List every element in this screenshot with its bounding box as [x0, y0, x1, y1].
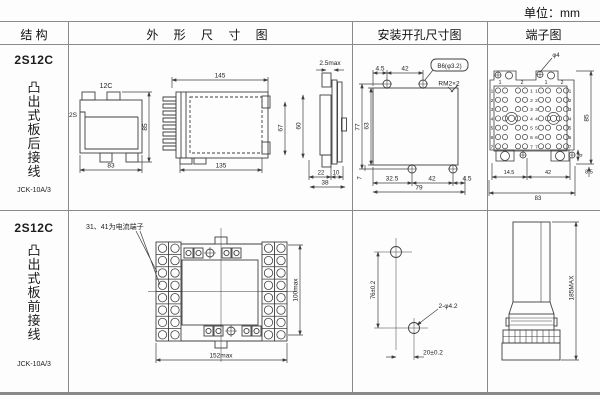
terminal-screw-circle — [264, 256, 272, 264]
row-label-right: 7 — [569, 144, 572, 150]
terminal-circle — [545, 107, 550, 112]
terminal-comb — [163, 97, 176, 150]
row-num-mid: 6 — [530, 135, 533, 141]
row-num-mid: 5 — [535, 126, 538, 132]
terminal-circle — [522, 88, 527, 93]
outline-drawing-row2 — [136, 228, 296, 362]
terminal-screw-circle — [158, 256, 166, 264]
terminal-screw-circle — [171, 281, 179, 289]
dim-rear-depth: 22 — [318, 171, 325, 177]
dim-bottom-total: 79 — [415, 185, 423, 192]
hole-note: B6(φ3.2) — [437, 63, 461, 70]
col-label: 1 — [499, 80, 502, 86]
terminal-circle — [538, 134, 543, 139]
mounting-dim-lines-row2 — [378, 252, 424, 357]
dim-width-max: 152max — [209, 353, 233, 360]
terminal-circle — [502, 134, 507, 139]
terminal-circle — [515, 97, 520, 102]
mounting-dim-lines-row1 — [359, 70, 465, 195]
datasheet-page: 单位：mm 结 构 外 形 尺 寸 图 安装开孔尺寸图 端子图 2S12C 凸 … — [0, 0, 600, 400]
terminal-hole-note: φ4 — [552, 53, 560, 59]
dim-bottom-seg2: 42 — [545, 170, 551, 176]
row-num-mid: 4 — [530, 116, 533, 122]
terminal-circle — [515, 107, 520, 112]
row-num-mid: 2 — [530, 98, 533, 104]
terminal-screw-circle — [277, 331, 285, 339]
terminal-circle — [522, 97, 527, 102]
terminal-circle — [538, 88, 543, 93]
dim-front-top: 12C — [100, 83, 113, 90]
drawings-svg: 12C 2S 83 85 145 135 67 60 2.5max 22 10 … — [0, 0, 600, 400]
row-label-left: 6 — [491, 135, 494, 141]
terminal-screw-circle — [277, 244, 285, 252]
terminal-screw-circle — [171, 293, 179, 301]
row-num-mid: 1 — [535, 89, 538, 95]
hole-size-note: 2-φ4.2 — [438, 303, 457, 310]
terminal-screw-circle — [264, 293, 272, 301]
dim-terminal-height: 85 — [584, 114, 591, 122]
terminal-screw-circle — [171, 331, 179, 339]
terminal-screw-circle — [158, 306, 166, 314]
dim-front-height: 85 — [142, 123, 149, 131]
terminal-circle — [495, 97, 500, 102]
terminal-circle — [538, 144, 543, 149]
terminal-circle — [515, 144, 520, 149]
row-num-mid: 3 — [535, 107, 538, 113]
terminal-screw-circle — [277, 318, 285, 326]
thread-note: RM2×2 — [438, 81, 460, 88]
mounting-bush-circle — [550, 115, 556, 121]
terminal-circle — [495, 144, 500, 149]
dim-bottom-seg1: 32.5 — [386, 176, 399, 183]
row-num-mid: 5 — [530, 126, 533, 132]
dim-height-max: 185MAX — [569, 275, 576, 301]
terminal-screw-circle — [277, 256, 285, 264]
terminal-circle — [556, 107, 561, 112]
row-label-left: 2 — [491, 98, 494, 104]
terminal-circle — [495, 125, 500, 130]
mounting-bush-circle — [548, 112, 560, 124]
dim-terminal-width: 83 — [535, 196, 542, 202]
terminal-screw-circle — [277, 293, 285, 301]
row-num-mid: 6 — [535, 135, 538, 141]
outline-drawing-row1 — [80, 73, 347, 167]
row-num-mid: 7 — [530, 144, 533, 150]
terminal-circle — [495, 116, 500, 121]
dim-front-side: 2S — [69, 112, 78, 119]
row-num-mid: 4 — [535, 116, 538, 122]
terminal-screw-circle — [264, 331, 272, 339]
outline-dim-text-row1: 12C 2S 83 85 145 135 67 60 2.5max 22 10 … — [69, 60, 341, 187]
terminal-screw-circle — [171, 306, 179, 314]
outline-dim-lines-row1 — [80, 70, 345, 187]
row-label-left: 1 — [491, 89, 494, 95]
terminal-circle — [502, 125, 507, 130]
terminal-circle — [495, 88, 500, 93]
terminal-screw-circle — [264, 318, 272, 326]
terminal-screw-circle — [171, 256, 179, 264]
row-label-right: 5 — [569, 126, 572, 132]
terminal-circle — [522, 144, 527, 149]
row-num-mid: 1 — [530, 89, 533, 95]
terminal-screw-circle — [264, 269, 272, 277]
terminal-circle — [515, 134, 520, 139]
dim-bottom-seg3: 4.5 — [462, 176, 471, 183]
dim-behind-panel: 38 — [321, 180, 329, 187]
terminal-screw-circle — [158, 269, 166, 277]
terminal-circle — [538, 107, 543, 112]
terminal-drawing-row2 — [502, 222, 560, 360]
terminal-circle — [502, 88, 507, 93]
terminal-grid: 1111222233334444555566667777 — [491, 88, 572, 150]
row-label-left: 7 — [491, 144, 494, 150]
dim-side-rear-h: 60 — [296, 122, 303, 130]
dim-front-width: 83 — [107, 163, 115, 170]
terminal-circle — [515, 125, 520, 130]
dim-height-max: 100max — [293, 278, 300, 302]
terminal-screw-circle — [277, 269, 285, 277]
dim-bottom-seg2: 42 — [428, 176, 436, 183]
dim-hole-spacing-h: 20±0.2 — [423, 350, 443, 357]
dim-clamp-depth: 10 — [333, 171, 340, 177]
terminal-circle — [495, 107, 500, 112]
mounting-drawing-row2 — [374, 238, 438, 360]
terminal-circle — [515, 88, 520, 93]
col-label: 1 — [545, 80, 548, 86]
terminal-circle — [515, 116, 520, 121]
terminal-screw-circle — [264, 281, 272, 289]
terminal-screw-circle — [171, 269, 179, 277]
dim-top-span: 42 — [401, 66, 409, 73]
dim-side-inner-h: 67 — [278, 124, 285, 132]
dim-panel-thickness: 2.5max — [319, 60, 341, 67]
current-terminal-note: 31、41为电流端子 — [86, 222, 144, 231]
terminal-circle — [556, 125, 561, 130]
terminal-circle — [538, 97, 543, 102]
terminal-circle — [522, 116, 527, 121]
terminal-circle — [545, 144, 550, 149]
terminal-screw-circle — [264, 306, 272, 314]
row-num-mid: 7 — [535, 144, 538, 150]
terminal-screw-circle — [158, 331, 166, 339]
terminal-drawing-row1: 1111222233334444555566667777 — [490, 58, 576, 161]
terminal-circle — [556, 134, 561, 139]
terminal-screw-circle — [277, 306, 285, 314]
dim-top-offset: 4.5 — [375, 66, 384, 73]
row-label-right: 6 — [569, 135, 572, 141]
mounting-dim-text-row2: 76±0.2 2-φ4.2 20±0.2 — [371, 280, 458, 356]
row-label-left: 5 — [491, 126, 494, 132]
row-num-mid: 3 — [530, 107, 533, 113]
col-label: 2 — [561, 80, 564, 86]
terminal-circle — [556, 88, 561, 93]
terminal-circle — [495, 134, 500, 139]
terminal-circle — [522, 125, 527, 130]
terminal-screw-circle — [158, 281, 166, 289]
mounting-bush-circle — [508, 115, 514, 121]
terminal-dim-text-row2: 185MAX — [569, 275, 576, 301]
terminal-circle — [545, 125, 550, 130]
dim-bottom-offset-v: 7 — [358, 176, 364, 180]
terminal-screw-circle — [277, 281, 285, 289]
dim-hole-spacing-v: 76±0.2 — [371, 280, 377, 299]
terminal-screw-circle — [158, 318, 166, 326]
terminal-screw-circle — [158, 244, 166, 252]
terminal-screw-circle — [158, 293, 166, 301]
terminal-circle — [502, 144, 507, 149]
terminal-circle — [502, 97, 507, 102]
row-label-right: 2 — [569, 98, 572, 104]
dim-side-offset: 8.5 — [585, 170, 593, 176]
terminal-circle — [502, 107, 507, 112]
dim-side-body: 135 — [216, 163, 227, 170]
terminal-circle — [522, 134, 527, 139]
terminal-screw-circle — [171, 318, 179, 326]
dim-bottom-seg1: 14.5 — [504, 170, 515, 176]
row-num-mid: 2 — [535, 98, 538, 104]
row-label-right: 3 — [569, 107, 572, 113]
col-label: 2 — [521, 80, 524, 86]
terminal-circle — [522, 107, 527, 112]
row-label-left: 4 — [491, 116, 494, 122]
terminal-circle — [545, 97, 550, 102]
terminal-screw-circle — [171, 244, 179, 252]
dim-total-h: 77 — [355, 123, 362, 131]
dim-foot-offset: 4 — [579, 154, 585, 157]
terminal-circle — [556, 144, 561, 149]
dim-side-total: 145 — [215, 73, 226, 80]
terminal-circle — [538, 125, 543, 130]
row-label-left: 3 — [491, 107, 494, 113]
terminal-circle — [556, 97, 561, 102]
row-label-right: 1 — [569, 89, 572, 95]
dim-cutout-h: 63 — [364, 122, 371, 130]
terminal-circle — [545, 134, 550, 139]
terminal-screw-circle — [264, 244, 272, 252]
terminal-circle — [545, 88, 550, 93]
terminal-circle — [502, 116, 507, 121]
mounting-dim-text-row1: 4.5 42 B6(φ3.2) RM2×2 77 63 7 32.5 42 4.… — [355, 63, 472, 192]
terminal-dim-lines-row1 — [489, 71, 594, 196]
terminal-circle — [538, 116, 543, 121]
row-label-right: 4 — [569, 116, 572, 122]
